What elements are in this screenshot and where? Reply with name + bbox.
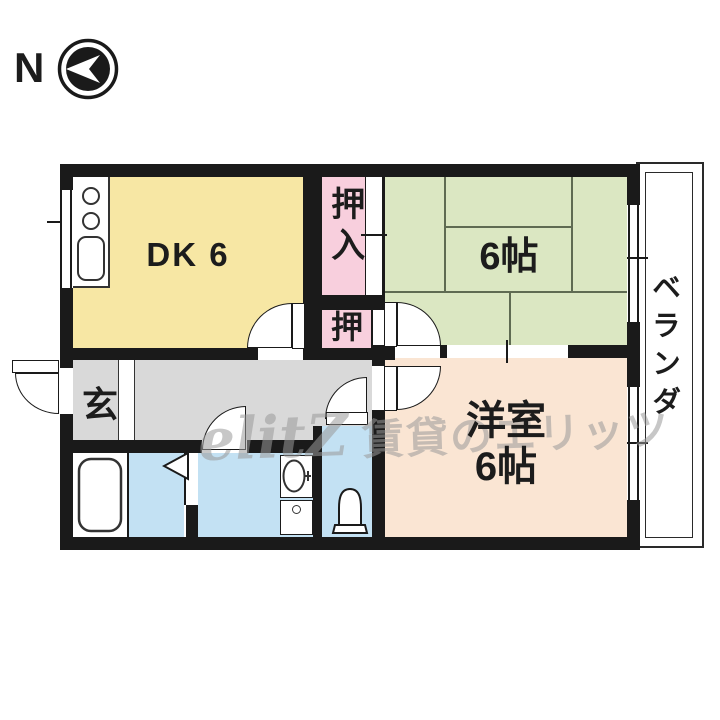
western-room-label: 洋室 6帖	[400, 398, 612, 490]
wall-tatami-bottom	[440, 345, 447, 358]
wall-right	[627, 164, 640, 205]
closet-lower-label: 押	[328, 311, 366, 345]
wall-closet-lower-right-line	[371, 310, 373, 348]
bathtub-icon	[73, 453, 127, 537]
western-room-label-line2: 6帖	[400, 444, 612, 490]
tatami-room-label: 6帖	[445, 238, 573, 278]
toilet-icon	[330, 486, 370, 536]
wall-western-left	[372, 358, 385, 366]
wall-top	[60, 164, 640, 177]
western-room-label-line1: 洋室	[400, 398, 612, 444]
wall-tatami-bottom	[568, 345, 627, 358]
compass-icon	[55, 36, 121, 102]
dk-door-leaf	[292, 303, 305, 349]
wall-dk-bottom	[60, 348, 258, 360]
wall-bottom	[60, 537, 640, 550]
washing-machine-tap-icon	[292, 505, 301, 514]
tatami-balcony-window-line	[628, 205, 630, 322]
wall-closet-upper-right-line	[383, 177, 385, 295]
wall-bath-divider	[127, 453, 129, 537]
tatami-door-leaf	[384, 302, 397, 347]
tatami-balcony-window-line	[637, 205, 639, 322]
floorplan-page: N	[0, 0, 720, 720]
partition-tick	[506, 340, 508, 363]
tatami-line	[385, 291, 627, 293]
entrance-label: 玄	[80, 386, 120, 424]
closet-upper-label: 押入	[326, 186, 362, 290]
balcony-label: ベランダ	[648, 272, 678, 442]
folding-door-icon	[162, 451, 190, 481]
wall-closet-divider	[303, 295, 385, 310]
genkan-step	[118, 360, 135, 440]
north-label: N	[14, 46, 44, 90]
closet-upper-sliding-front	[365, 177, 383, 295]
kitchen-window-line	[60, 190, 62, 288]
wall-left	[60, 414, 73, 537]
entrance-door-leaf	[12, 360, 59, 373]
tatami-line	[509, 291, 511, 345]
dining-kitchen-label: DK 6	[88, 238, 288, 273]
entrance-door-swing	[15, 373, 59, 414]
tatami-line	[444, 226, 573, 228]
tatami-balcony-window-tick	[627, 257, 648, 259]
stove-burner-icon	[82, 212, 100, 230]
wall-washroom-stub	[186, 505, 198, 537]
kitchen-window-line	[70, 190, 72, 288]
watermark-logo: elitZ	[197, 401, 349, 474]
stove-burner-icon	[82, 187, 100, 205]
wall-left	[60, 164, 73, 190]
closet-front-tick	[361, 234, 387, 236]
wall-right	[627, 322, 640, 387]
wall-dk-closet	[303, 164, 322, 360]
wall-right	[627, 500, 640, 537]
kitchen-window-tick	[47, 221, 61, 223]
